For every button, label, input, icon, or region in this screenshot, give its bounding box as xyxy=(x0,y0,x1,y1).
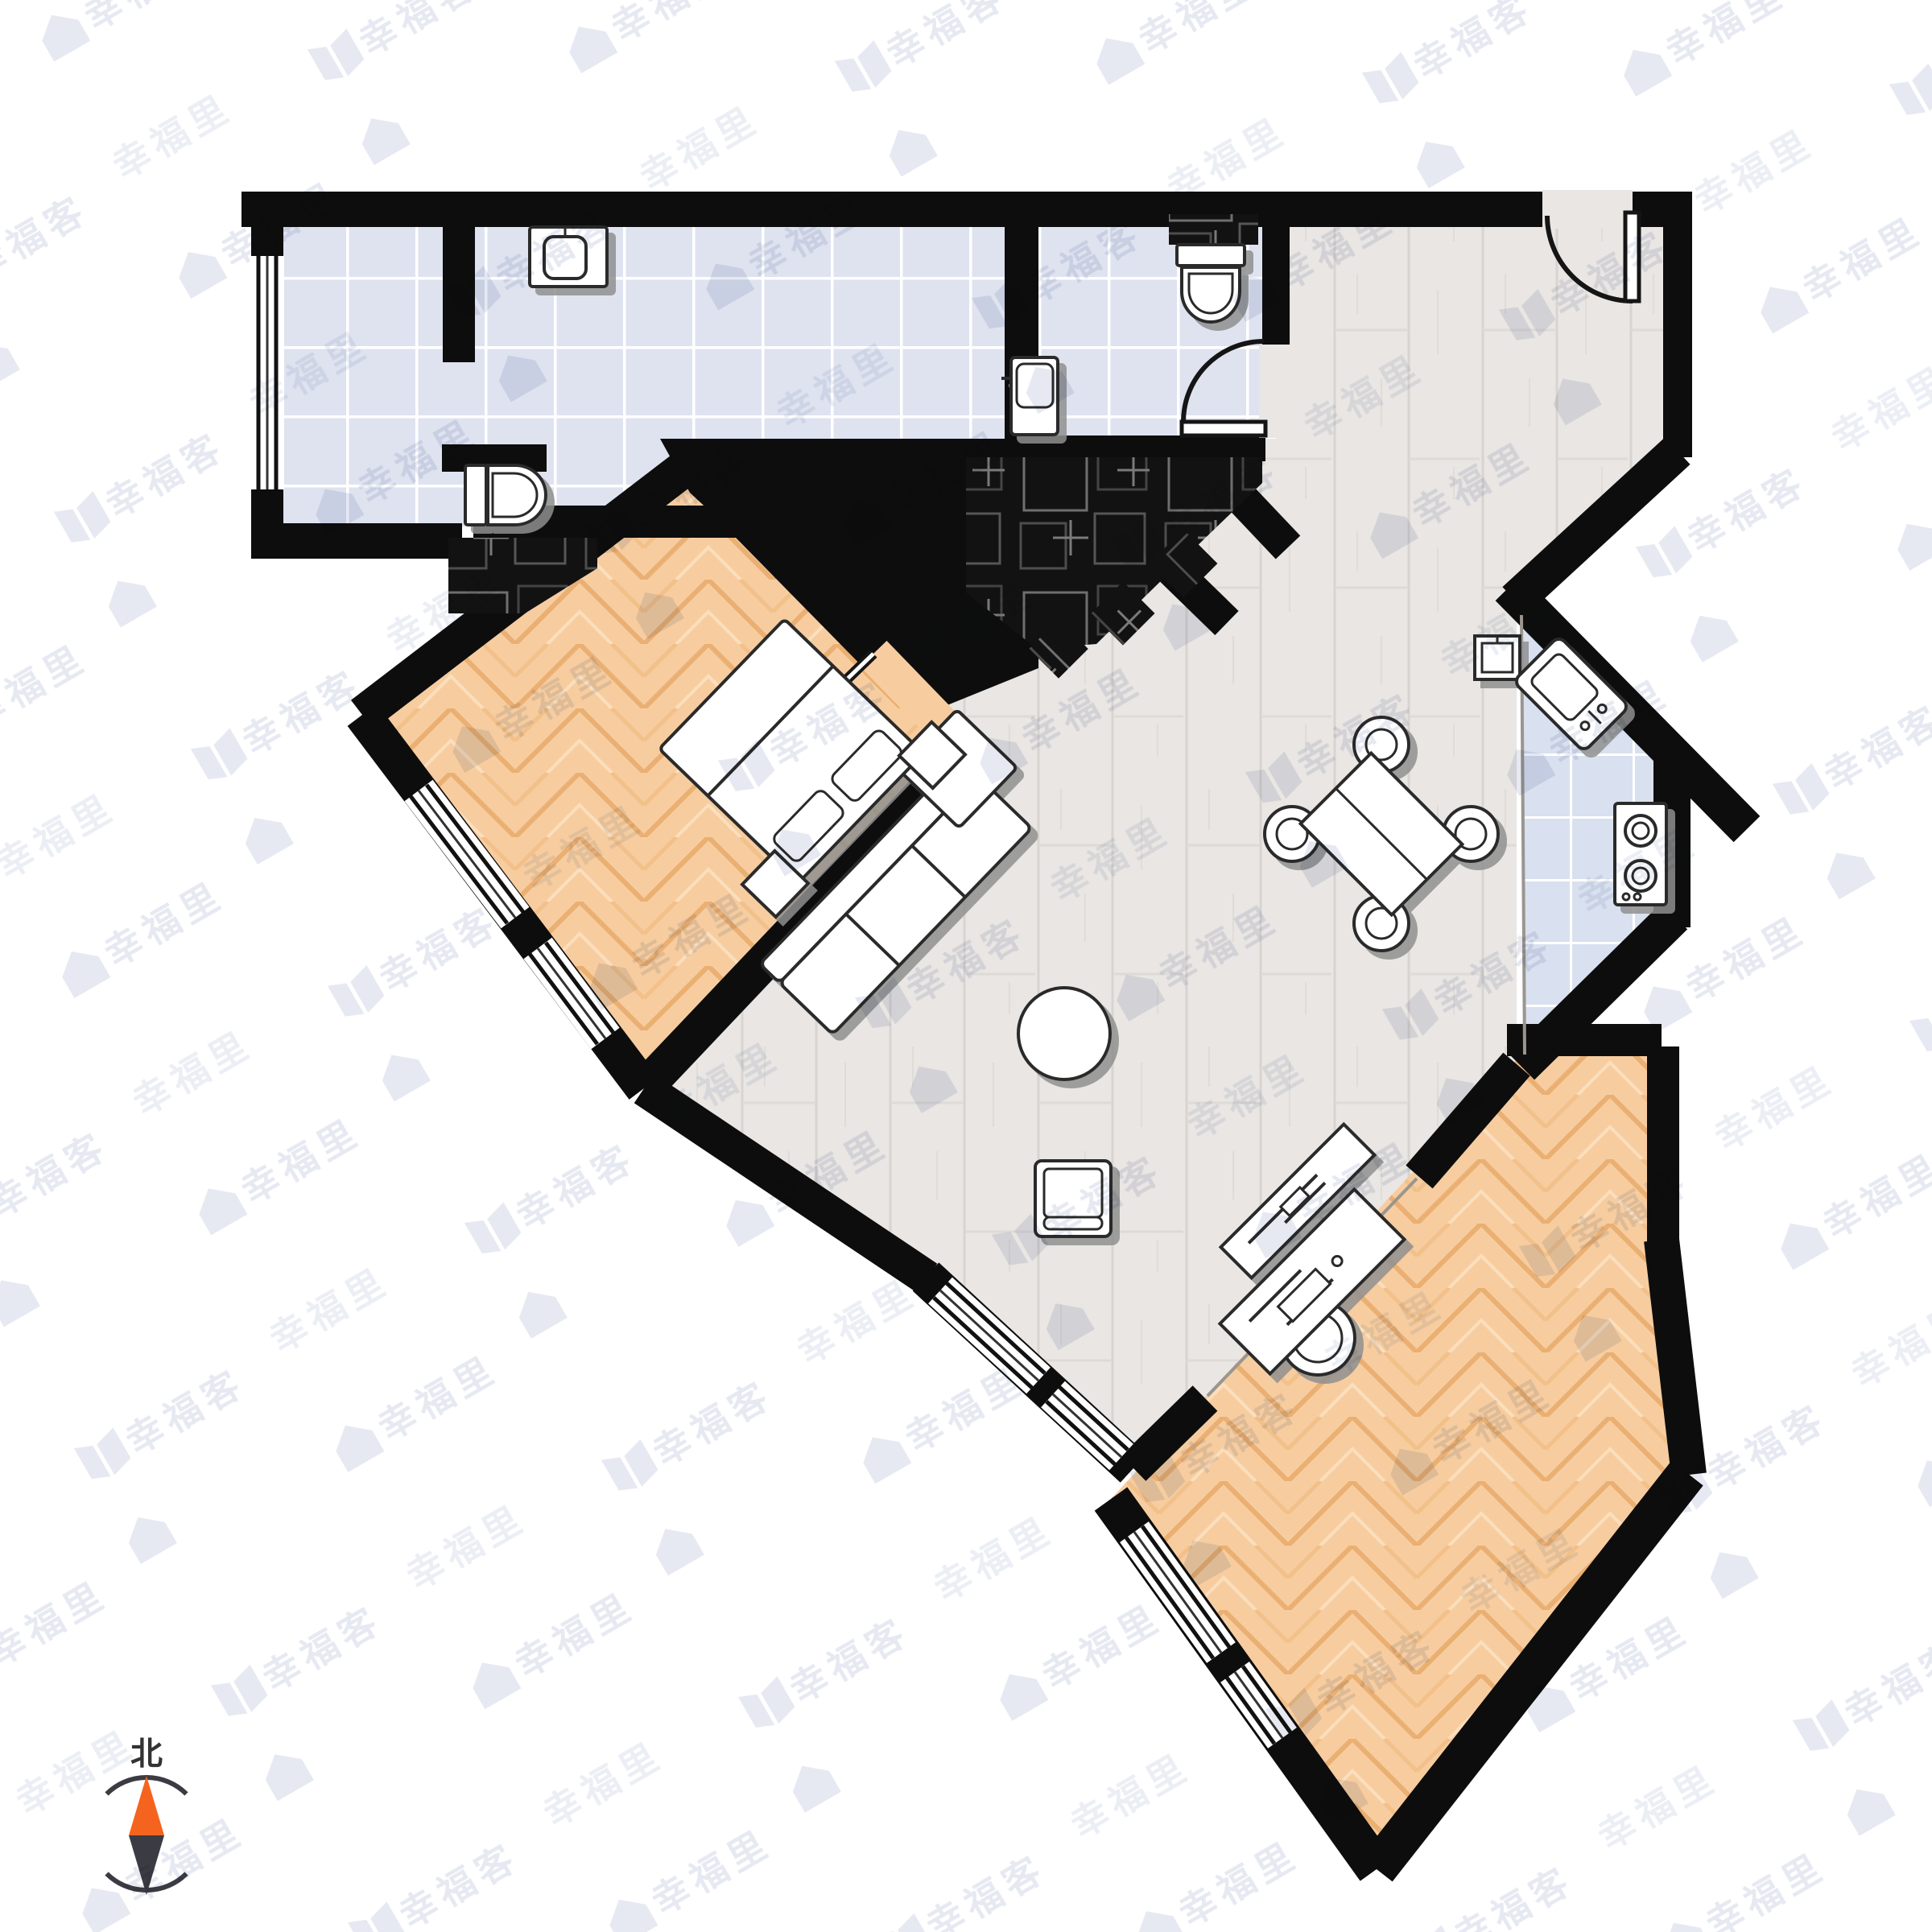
floor-plan-canvas: 幸福里 幸福客 幸福里 xyxy=(0,0,1932,1932)
floor-plan-svg: 幸福里 幸福客 幸福里 xyxy=(0,0,1932,1932)
watermark-overlay xyxy=(0,0,1932,1932)
